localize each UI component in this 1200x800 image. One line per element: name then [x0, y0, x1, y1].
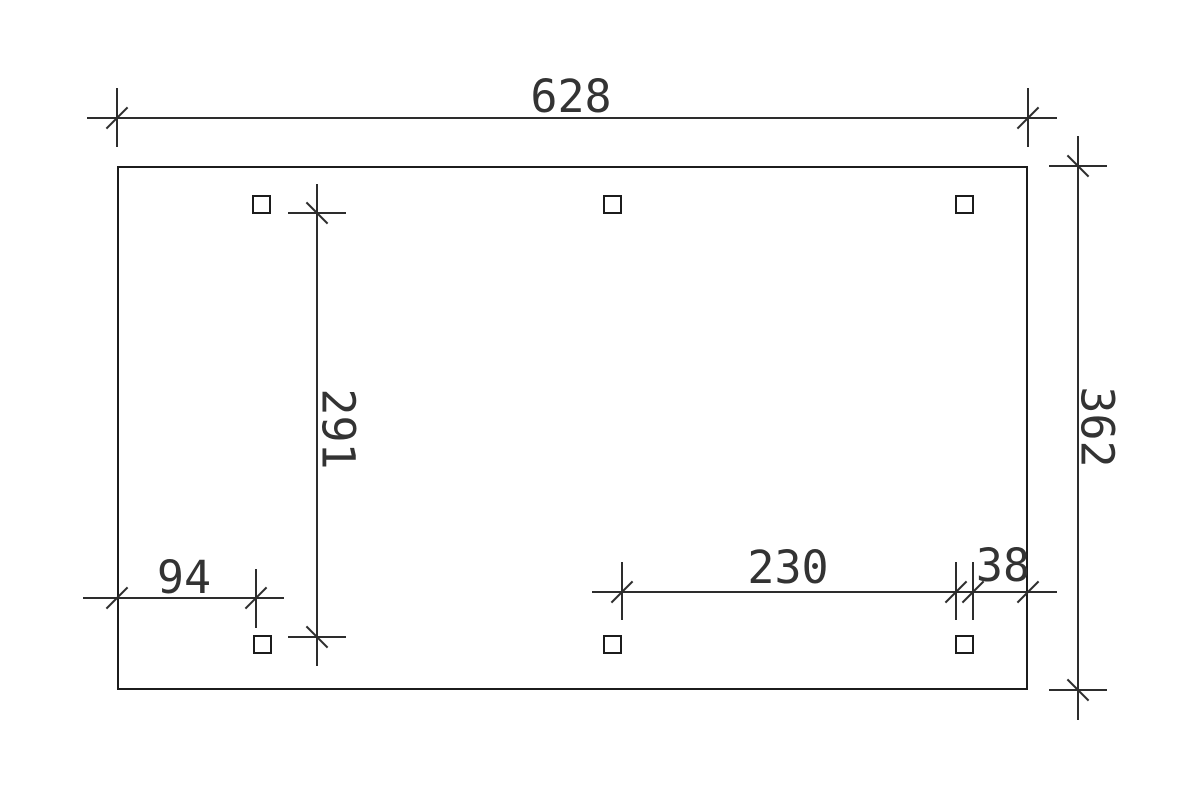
post-marker-top-right — [955, 195, 974, 214]
post-marker-bottom-right — [955, 635, 974, 654]
dim-label-post-spacing: 230 — [747, 545, 828, 590]
post-marker-bottom-left — [253, 635, 272, 654]
structure-outline — [117, 166, 1028, 690]
post-marker-top-middle — [603, 195, 622, 214]
dim-label-top-width: 628 — [530, 74, 611, 119]
dim-label-post-axis: 291 — [316, 388, 361, 469]
dim-label-bottom-left-offset: 94 — [157, 555, 211, 600]
post-marker-top-left — [252, 195, 271, 214]
technical-drawing-canvas: 628 362 291 94 230 38 — [0, 0, 1200, 800]
dim-label-right-height: 362 — [1075, 386, 1120, 467]
post-marker-bottom-middle — [603, 635, 622, 654]
dim-label-bottom-right-offset: 38 — [976, 543, 1030, 588]
